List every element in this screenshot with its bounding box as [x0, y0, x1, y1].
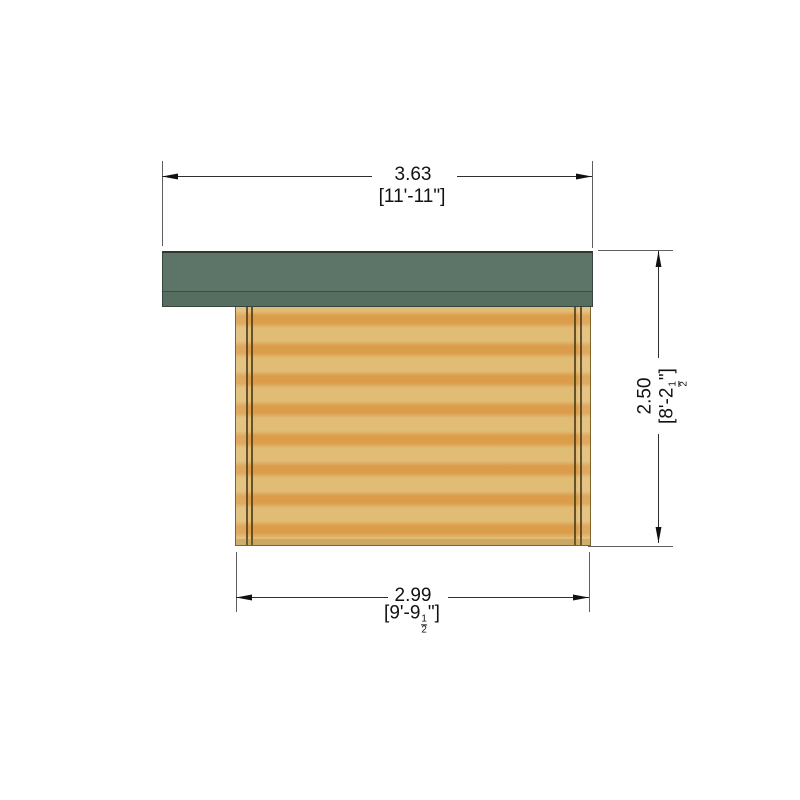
bottom-dim-extension-right: [589, 552, 590, 612]
bottom-dim-arrowhead-right-icon: [573, 594, 589, 601]
roof: [162, 251, 593, 307]
right-dim-metric-label: 2.50: [634, 368, 656, 424]
half-fraction: 12: [668, 381, 689, 387]
top-dim-arrowhead-right-icon: [576, 173, 592, 180]
bottom-dim-line-left: [236, 597, 388, 598]
top-dim-arrowhead-left-icon: [162, 173, 178, 180]
left-corner-trim-line-inner: [251, 307, 253, 545]
bottom-dim-extension-left: [236, 552, 237, 612]
right-dim-imperial-label: [8'-212"]: [656, 368, 689, 424]
wall-bottom-shade: [236, 539, 590, 545]
top-dim-metric-label: 3.63: [395, 164, 432, 186]
half-fraction: 12: [421, 614, 427, 635]
bottom-dim-line-right: [448, 597, 589, 598]
right-dim-line-bottom: [658, 434, 659, 543]
top-dim-line-right: [457, 176, 592, 177]
elevation-drawing: 3.63 [11'-11"] 2.50 [8'-212"] 2.99 [9'-9…: [0, 0, 800, 800]
right-dim-line-top: [658, 251, 659, 358]
top-dim-line-left: [162, 176, 372, 177]
right-corner-trim-line-inner: [574, 307, 576, 545]
top-dim-imperial-label: [11'-11"]: [379, 186, 446, 208]
wall: [235, 307, 591, 546]
right-dim-extension-top: [598, 250, 673, 251]
left-corner-trim-line-outer: [246, 307, 248, 545]
right-dim-extension-bottom: [588, 546, 673, 547]
bottom-dim-arrowhead-left-icon: [236, 594, 252, 601]
right-dim-arrowhead-down-icon: [655, 527, 662, 543]
right-dim-label: 2.50 [8'-212"]: [634, 368, 689, 424]
right-corner-trim-line-outer: [580, 307, 582, 545]
top-dim-extension-left: [162, 161, 163, 246]
top-dim-extension-right: [592, 161, 593, 248]
right-dim-arrowhead-up-icon: [655, 251, 662, 267]
bottom-dim-imperial-label: [9'-912"]: [384, 602, 440, 635]
roof-fascia: [163, 291, 592, 306]
